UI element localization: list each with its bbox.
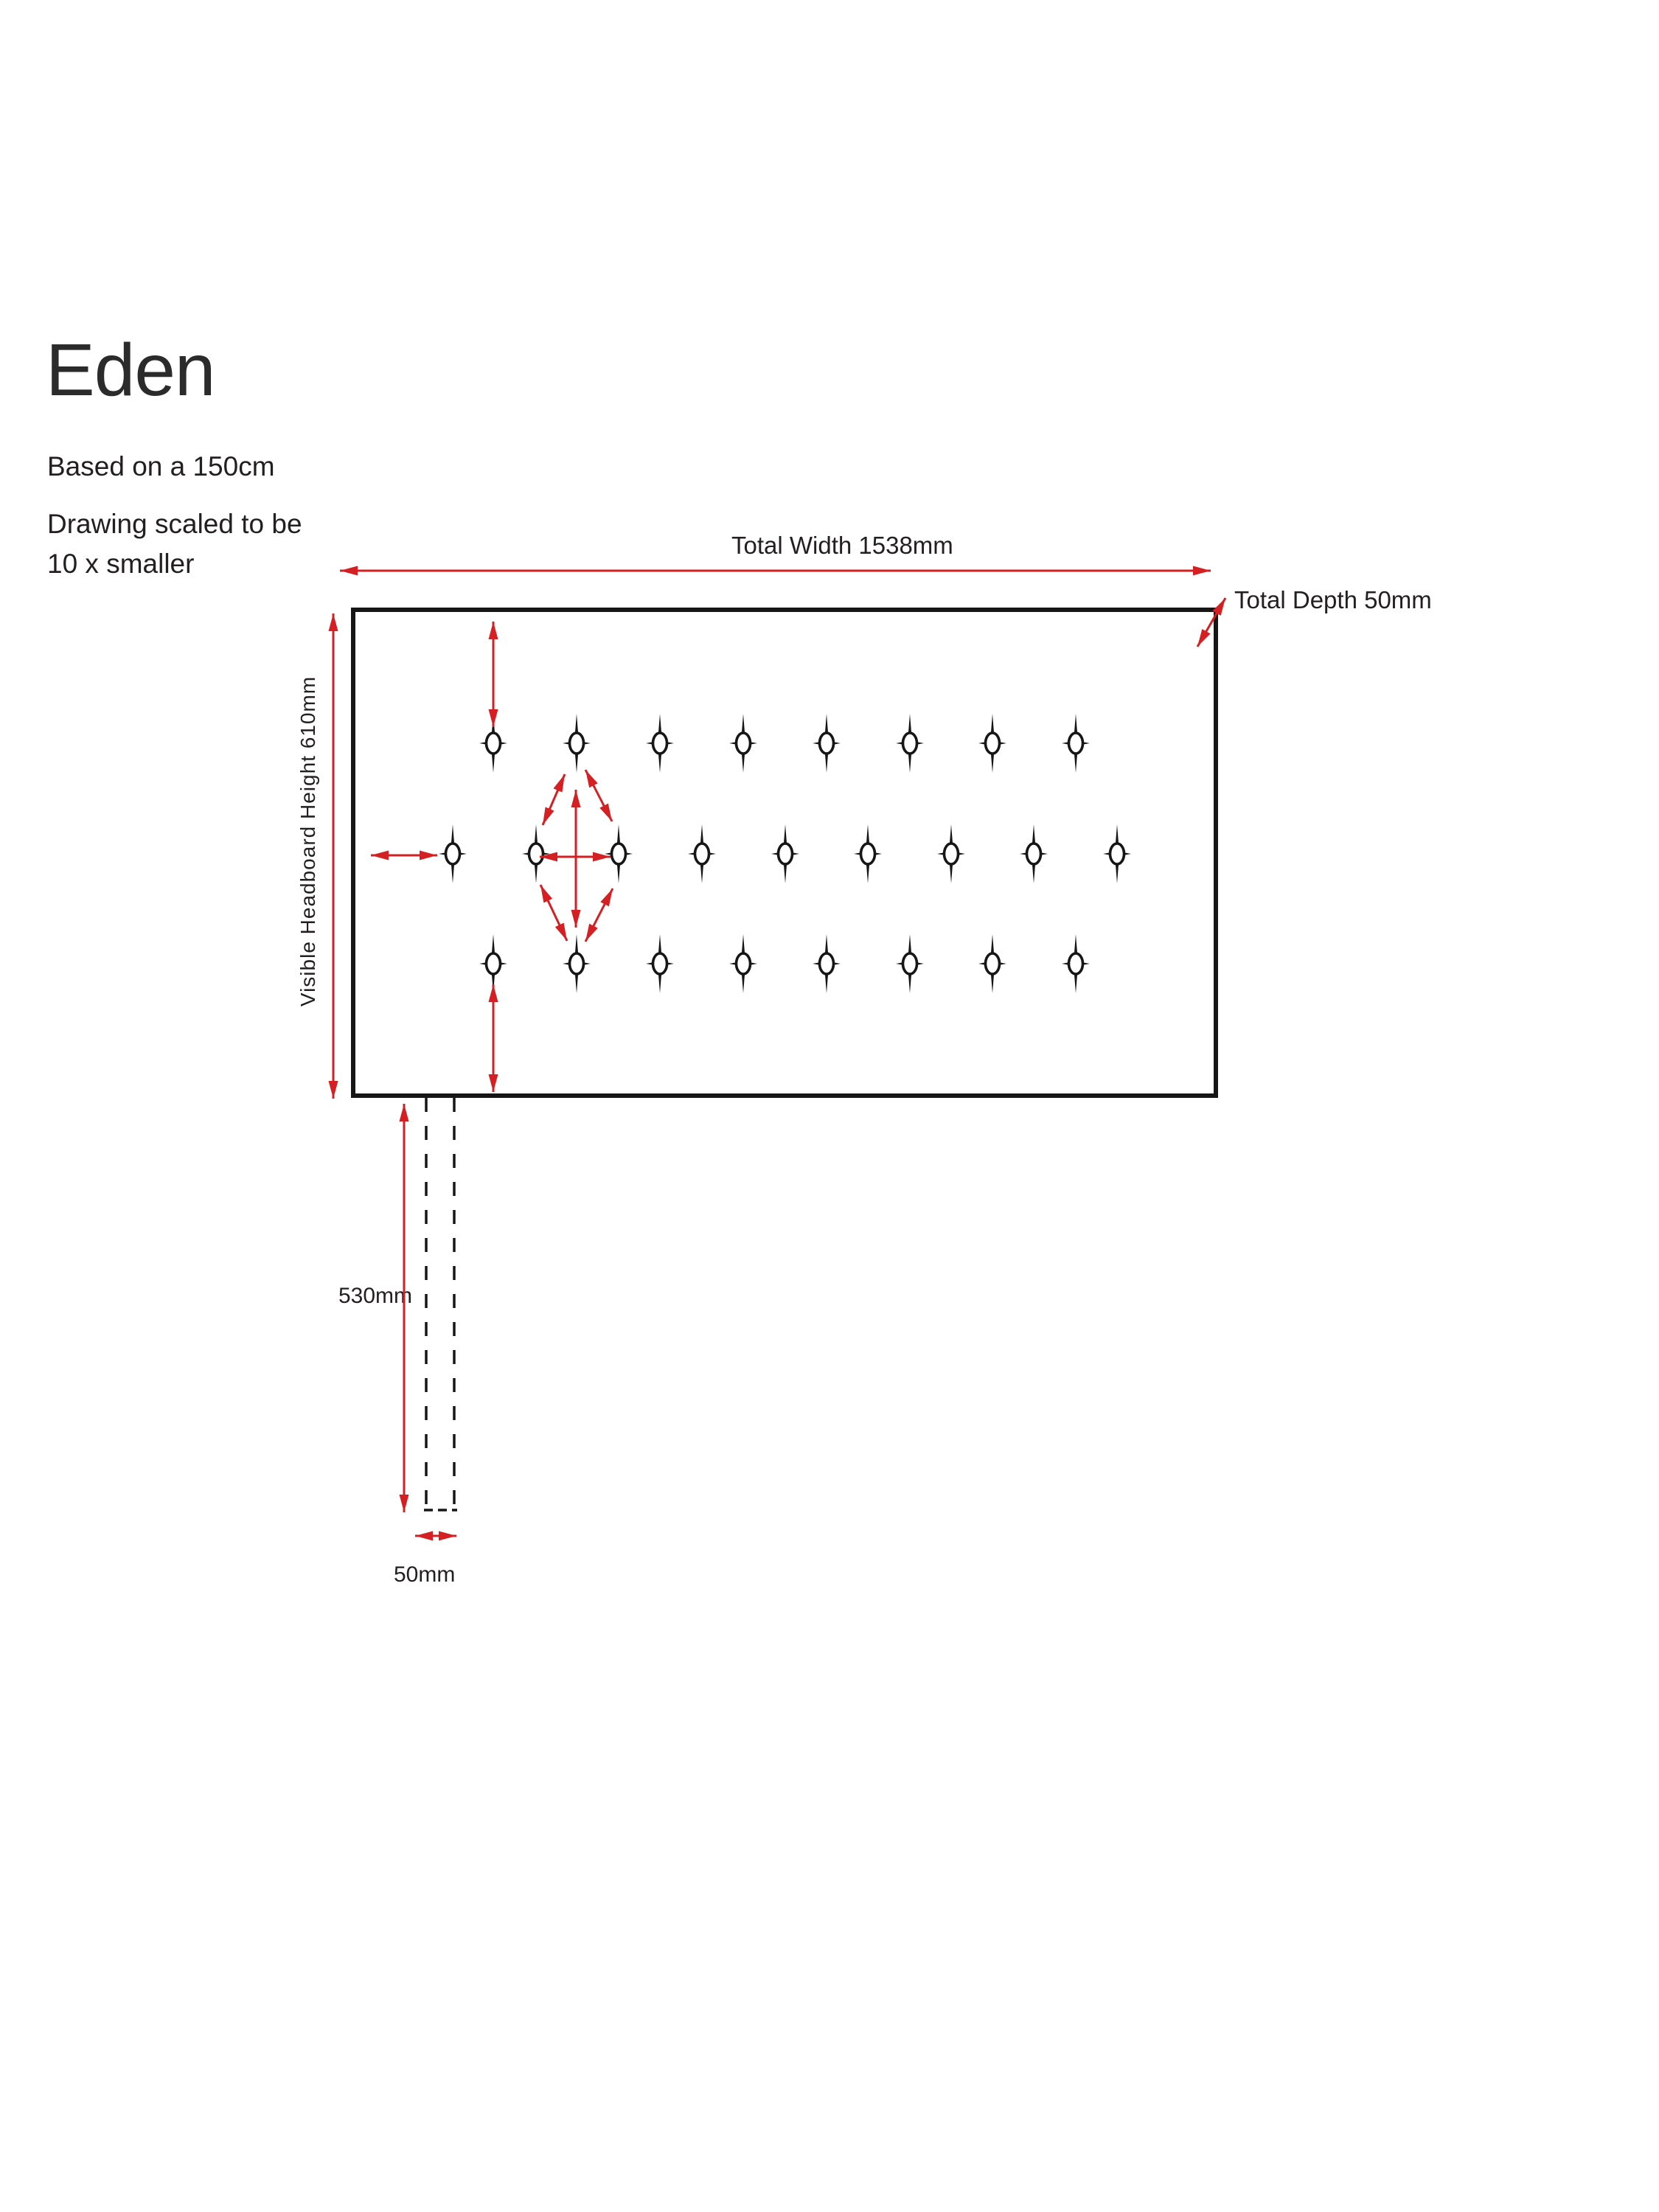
drawing-page: Eden Based on a 150cm Drawing scaled to … [0, 0, 1659, 2212]
leg-outline-dashed [424, 1098, 457, 1510]
headboard-technical-drawing [0, 0, 1659, 2212]
